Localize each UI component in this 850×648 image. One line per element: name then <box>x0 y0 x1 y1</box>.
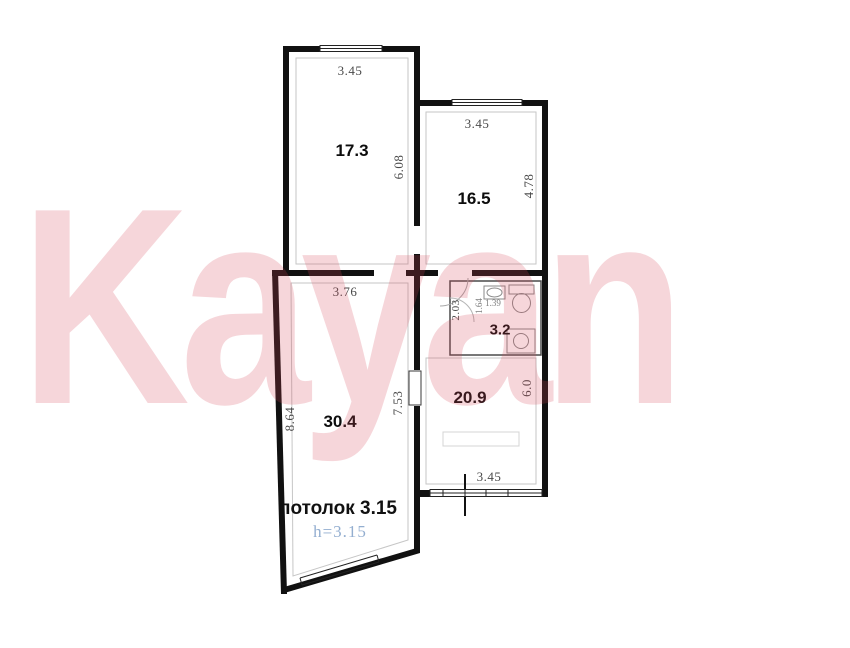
room-area-3-2: 3.2 <box>490 322 511 339</box>
dim-label-room17-height: 6.08 <box>391 155 407 180</box>
dim-label-hall-width: 3.45 <box>477 469 502 485</box>
door-leaf <box>409 371 421 405</box>
room-area-30-4: 30.4 <box>323 412 356 432</box>
room-area-20-9: 20.9 <box>453 388 486 408</box>
sink-basin-icon <box>487 288 502 297</box>
floor-plan-canvas: 3.45 6.08 17.3 3.45 4.78 16.5 3.76 8.64 … <box>0 0 850 648</box>
bathroom-walls <box>450 281 541 355</box>
room-area-16-5: 16.5 <box>457 189 490 209</box>
dim-label-room30-right: 7.53 <box>390 391 406 416</box>
dim-label-room17-width: 3.45 <box>338 63 363 79</box>
floor-plan-drawing <box>0 0 850 648</box>
dim-label-room30-top: 3.76 <box>333 284 358 300</box>
ceiling-height-note: потолок 3.15 <box>279 498 397 520</box>
dim-label-bath-inner-b: 1.39 <box>485 298 501 308</box>
dim-label-bath-left: 2.03 <box>450 299 462 320</box>
dim-label-room30-left: 8.64 <box>282 407 298 432</box>
washing-machine-icon <box>507 329 535 353</box>
toilet-tank-icon <box>509 285 534 294</box>
height-note: h=3.15 <box>313 522 367 542</box>
room-area-17-3: 17.3 <box>335 141 368 161</box>
dim-label-bath-inner-a: 1.64 <box>474 298 484 314</box>
dim-label-room16-width: 3.45 <box>465 116 490 132</box>
dim-label-room16-height: 4.78 <box>521 174 537 199</box>
dim-label-hall-height: 6.0 <box>519 379 535 397</box>
washing-machine-drum-icon <box>514 334 529 349</box>
furniture-outline <box>443 432 519 446</box>
bathroom-fixtures <box>484 285 535 353</box>
toilet-bowl-icon <box>513 294 531 313</box>
